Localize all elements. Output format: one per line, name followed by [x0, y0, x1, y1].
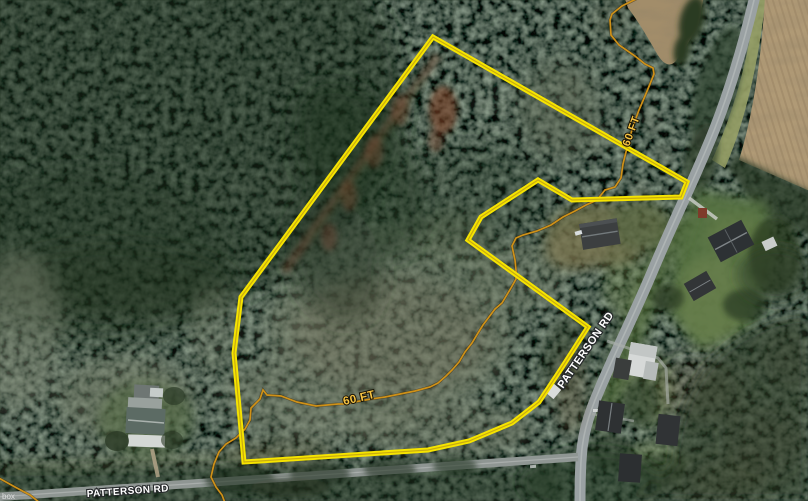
svg-text:box: box — [2, 492, 15, 501]
